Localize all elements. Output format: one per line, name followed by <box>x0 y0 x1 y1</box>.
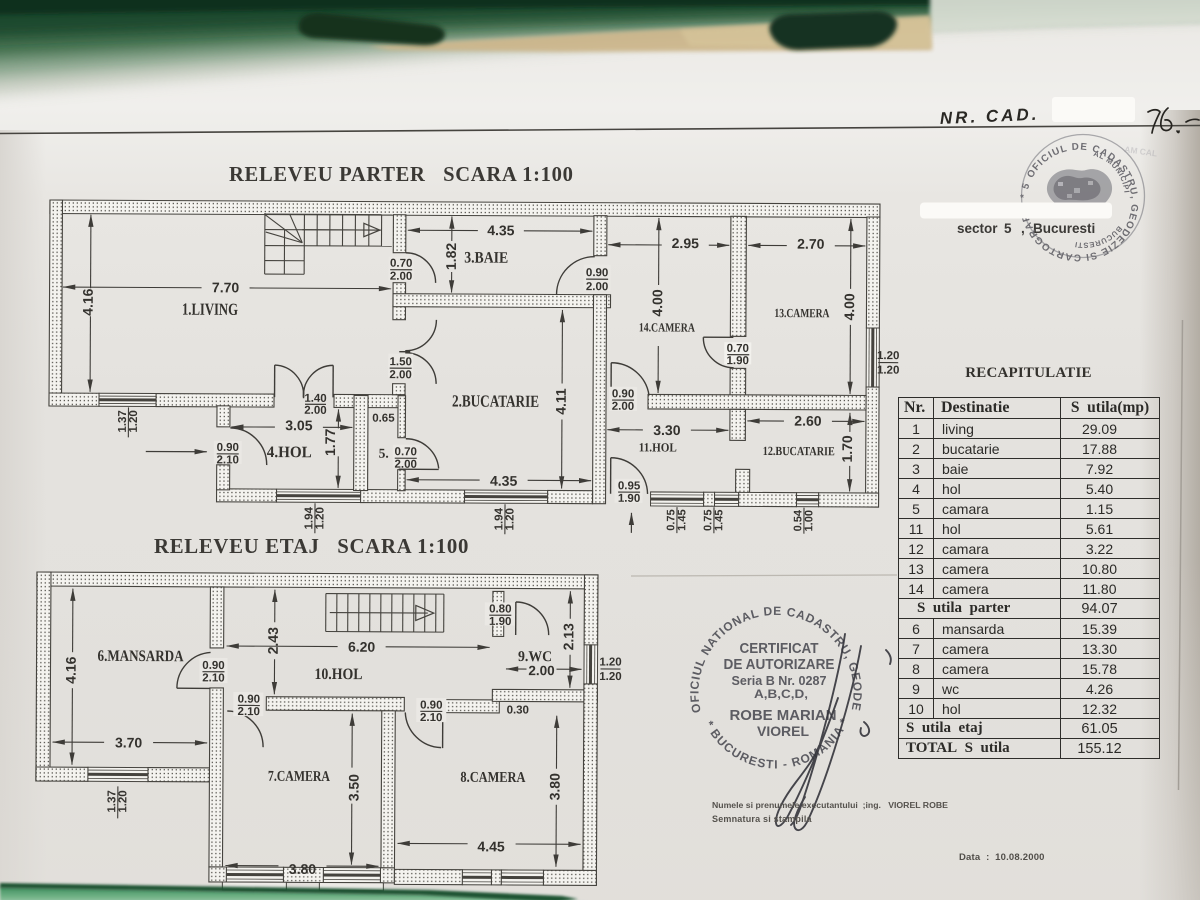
svg-text:5: 5 <box>1004 221 1012 236</box>
svg-text:AM CAL: AM CAL <box>1124 144 1158 159</box>
svg-text:Bucuresti: Bucuresti <box>1033 221 1095 236</box>
svg-text:A,B,C,D,: A,B,C,D, <box>754 689 808 701</box>
svg-text:VIOREL: VIOREL <box>757 723 809 739</box>
svg-text:OFICIUL NATIONAL DE CADASTRU,: OFICIUL NATIONAL DE CADASTRU, GEODEZIE S… <box>0 0 865 714</box>
svg-text:CERTIFICAT: CERTIFICAT <box>740 641 819 657</box>
svg-text:AL MUNICIPIULUI: AL MUNICIPIULUI <box>0 0 1131 194</box>
svg-text:,: , <box>1021 221 1025 236</box>
svg-text:DE AUTORIZARE: DE AUTORIZARE <box>724 657 835 673</box>
svg-text:Seria B Nr. 0287: Seria B Nr. 0287 <box>732 674 827 688</box>
svg-text:NR. CAD.: NR. CAD. <box>940 105 1040 128</box>
svg-text:sector: sector <box>957 221 998 236</box>
svg-text:ROBE MARIAN: ROBE MARIAN <box>730 708 837 724</box>
